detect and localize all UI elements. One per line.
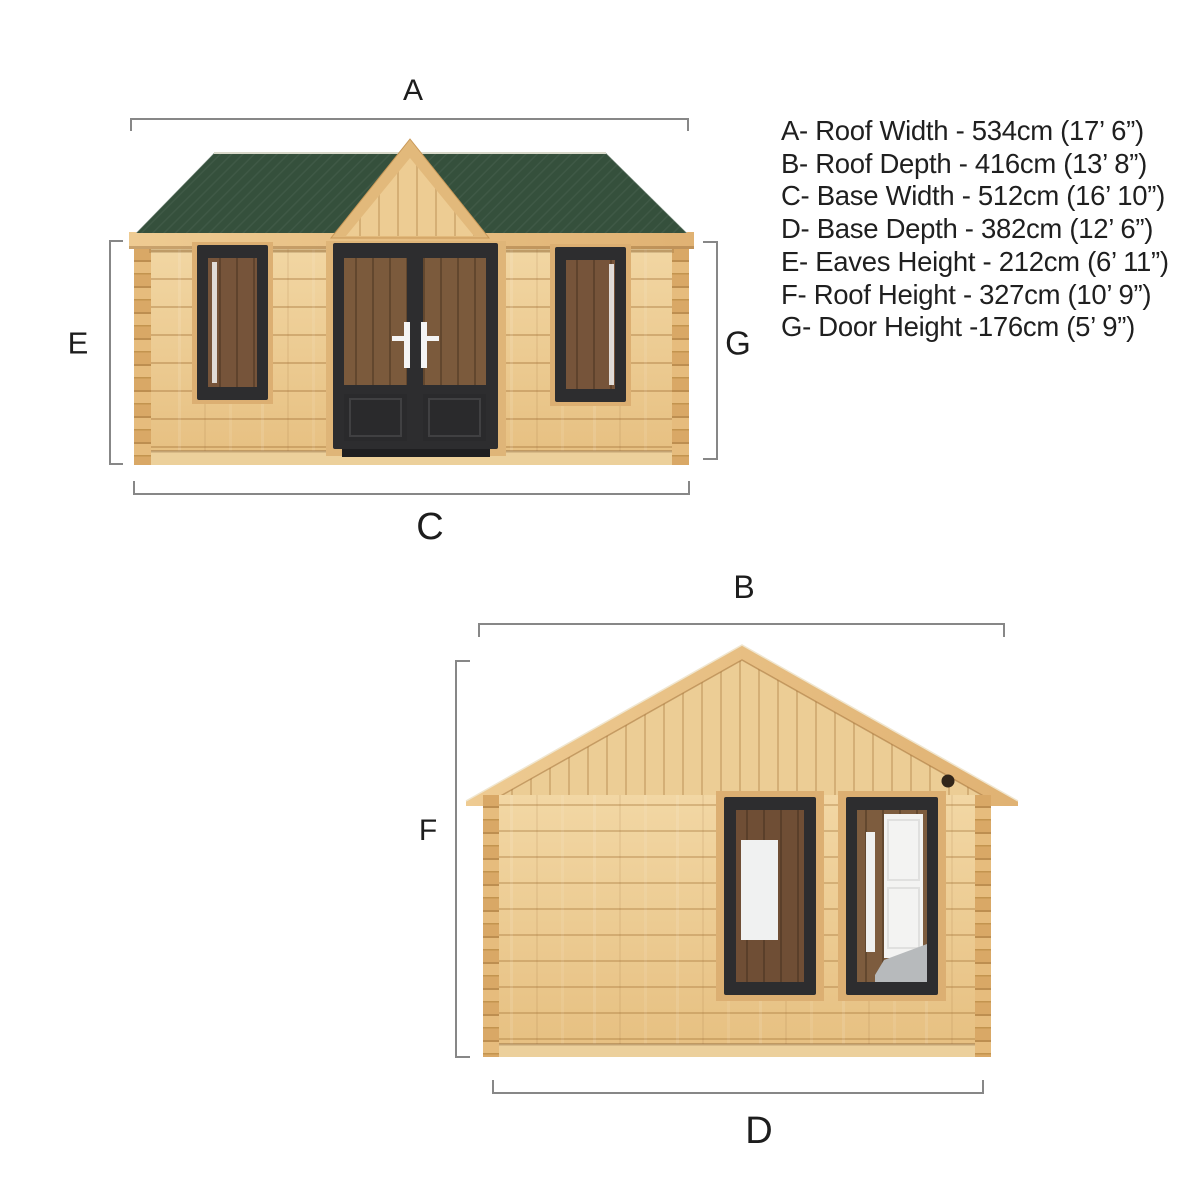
interior-door-slit (866, 832, 875, 952)
dimension-label-g: G (725, 327, 751, 360)
dimension-bracket-f (456, 661, 470, 1057)
front-double-door (326, 241, 506, 457)
dimension-bracket-d (493, 1080, 983, 1093)
front-left-window (192, 242, 273, 404)
dimension-label-e: E (68, 328, 89, 359)
legend-row-roof-depth: B- Roof Depth - 416cm (13’ 8”) (781, 148, 1169, 181)
dimension-bracket-g (703, 242, 717, 459)
dimension-diagram-page: A B C D E F G A- Roof Width - 534cm (17’… (0, 0, 1200, 1200)
dimension-legend: A- Roof Width - 534cm (17’ 6”) B- Roof D… (781, 115, 1169, 344)
door-panel-left (344, 394, 407, 441)
dimension-bracket-b (479, 624, 1004, 637)
dimension-bracket-a (131, 119, 688, 131)
glass-reflection (609, 264, 614, 385)
legend-row-roof-height: F- Roof Height - 327cm (10’ 9”) (781, 279, 1169, 312)
dimension-bracket-c (134, 481, 689, 494)
door-threshold (342, 449, 490, 457)
dimension-label-f: F (419, 816, 437, 846)
door-panel-right (423, 394, 486, 441)
side-elevation-illustration (456, 624, 1018, 1093)
legend-row-eaves-height: E- Eaves Height - 212cm (6’ 11”) (781, 246, 1169, 279)
side-gable-wall (497, 660, 987, 798)
side-base-rail (498, 1044, 975, 1057)
legend-row-base-depth: D- Base Depth - 382cm (12’ 6”) (781, 213, 1169, 246)
roof-knot-dot (942, 775, 955, 788)
interior-white-panel (741, 840, 778, 940)
interior-white-door (884, 814, 923, 958)
dimension-label-c: C (416, 508, 443, 546)
front-left-corner-logs (134, 249, 151, 465)
side-window-right (838, 791, 946, 1001)
legend-row-roof-width: A- Roof Width - 534cm (17’ 6”) (781, 115, 1169, 148)
glass-reflection (212, 262, 217, 383)
front-right-window (550, 244, 631, 406)
dimension-label-b: B (733, 571, 754, 603)
dimension-bracket-e (110, 241, 123, 464)
side-left-corner-logs (483, 795, 499, 1057)
dimension-label-d: D (745, 1112, 772, 1150)
dimension-label-a: A (403, 76, 423, 106)
front-elevation-illustration (110, 119, 717, 494)
side-right-corner-logs (975, 795, 991, 1057)
legend-row-base-width: C- Base Width - 512cm (16’ 10”) (781, 180, 1169, 213)
side-window-left (716, 791, 824, 1001)
legend-row-door-height: G- Door Height -176cm (5’ 9”) (781, 311, 1169, 344)
front-right-corner-logs (672, 249, 689, 465)
